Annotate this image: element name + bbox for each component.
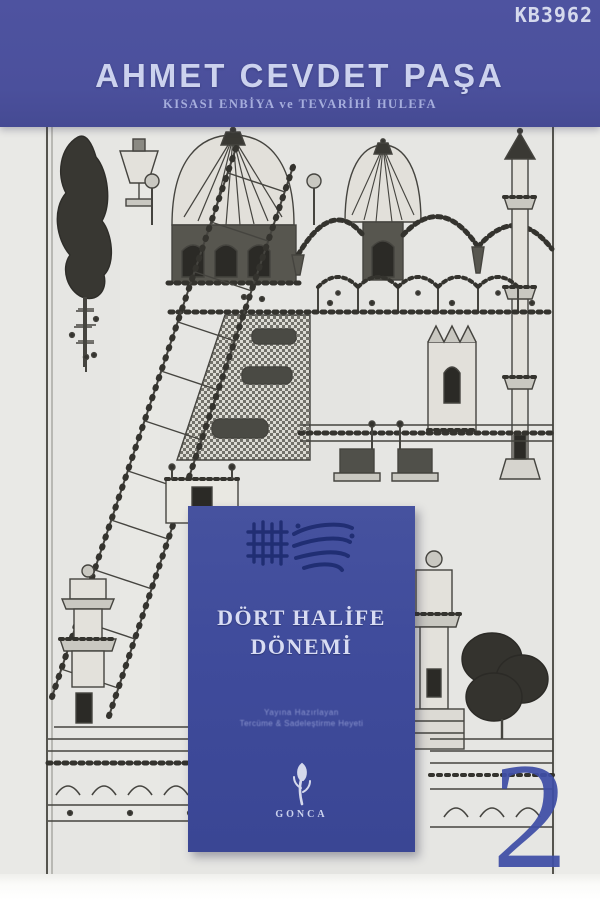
book-title-line2: DÖNEMİ	[188, 632, 415, 661]
credits: Yayına Hazırlayan Tercüme & Sadeleştirme…	[188, 707, 415, 729]
crown-tower	[428, 326, 476, 430]
title-panel: DÖRT HALİFE DÖNEMİ Yayına Hazırlayan Ter…	[188, 506, 415, 852]
publisher-name: GONCA	[188, 809, 415, 820]
book-title: DÖRT HALİFE DÖNEMİ	[188, 603, 415, 661]
credit-line2: Tercüme & Sadeleştirme Heyeti	[188, 718, 415, 729]
author-name: AHMET CEVDET PAŞA	[0, 57, 600, 95]
volume-number: 2	[492, 757, 568, 876]
book-cover: KB3962 AHMET CEVDET PAŞA KISASI ENBİYA v…	[0, 0, 600, 900]
publisher-emblem-icon	[289, 762, 315, 806]
header-band: KB3962 AHMET CEVDET PAŞA KISASI ENBİYA v…	[0, 0, 600, 127]
credit-line1: Yayına Hazırlayan	[188, 707, 415, 718]
book-title-line1: DÖRT HALİFE	[188, 603, 415, 632]
watermark-code: KB3962	[515, 3, 593, 27]
series-title: KISASI ENBİYA ve TEVARİHİ HULEFA	[0, 97, 600, 112]
arabic-calligraphy-icon	[240, 516, 360, 574]
